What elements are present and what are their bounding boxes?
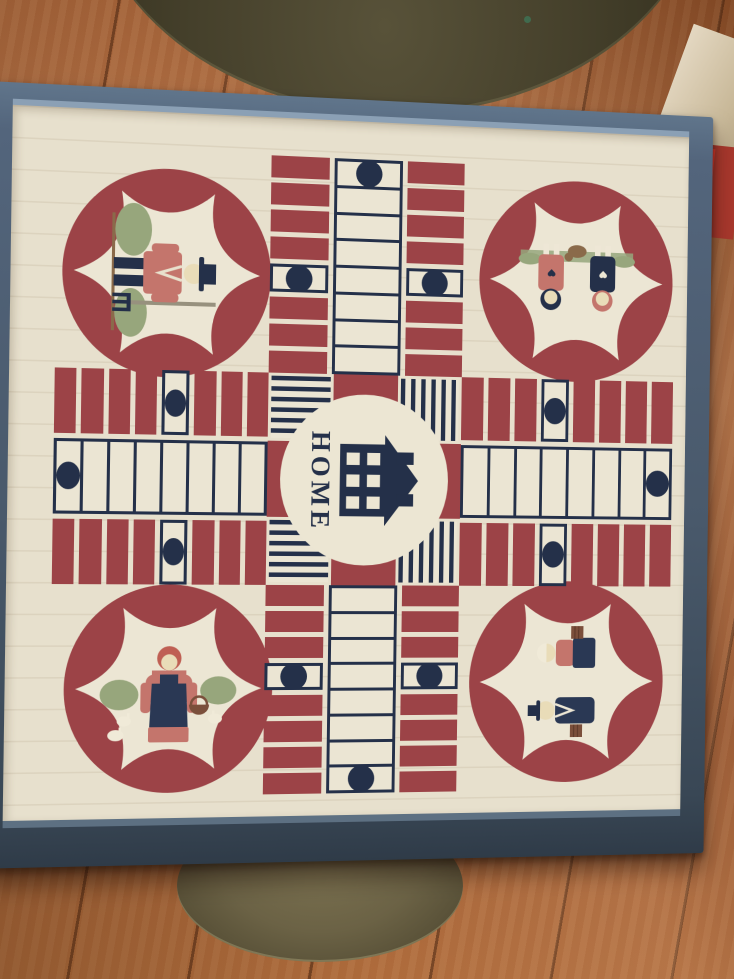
track-cell	[336, 321, 398, 349]
track-cell	[215, 444, 242, 513]
children-figure-graphic	[476, 175, 676, 386]
safe-dot	[347, 765, 374, 792]
track-cell	[597, 524, 619, 586]
track-cell	[571, 524, 593, 586]
track-cell	[337, 188, 399, 217]
corner-medallion-children	[476, 175, 676, 386]
track-lane-side	[405, 161, 465, 377]
game-board: HOME	[0, 81, 713, 868]
safe-cell	[646, 451, 670, 517]
track-cell	[399, 771, 457, 793]
track-cell	[623, 524, 645, 586]
track-cell	[218, 520, 240, 585]
track-cell	[133, 519, 156, 584]
track-lane-side	[52, 519, 267, 585]
corner-medallion-woman	[60, 582, 276, 796]
track-cell	[83, 442, 111, 511]
board-frame: HOME	[0, 81, 713, 868]
track-cell	[79, 519, 102, 584]
track-cell	[512, 523, 535, 586]
track-cell	[625, 381, 647, 443]
photo-scene: HOME	[0, 0, 734, 979]
track-cell	[269, 323, 328, 347]
track-cell	[400, 694, 458, 715]
track-cell	[241, 444, 265, 512]
safe-dot	[544, 397, 566, 424]
track-cell	[109, 442, 137, 511]
safe-cell	[159, 520, 187, 585]
track-cell	[489, 449, 516, 516]
track-cell	[263, 773, 322, 795]
woman-figure-graphic	[60, 582, 276, 796]
track-cell	[401, 585, 459, 606]
track-cell	[336, 294, 398, 322]
safe-cell	[270, 263, 329, 293]
home-label: HOME	[306, 427, 334, 533]
track-cell	[401, 637, 459, 658]
track-lane-side	[54, 367, 269, 436]
corner-medallion-farmer	[59, 162, 275, 381]
track-cell	[407, 188, 465, 212]
safe-dot	[280, 663, 307, 690]
track-cell	[52, 519, 75, 585]
track-cell	[516, 449, 543, 516]
track-cell	[270, 236, 329, 260]
track-lane-mid	[53, 438, 268, 516]
track-cell	[332, 614, 394, 640]
track-cell	[649, 525, 671, 587]
farmer-figure-graphic	[59, 162, 275, 381]
table-speck	[524, 16, 531, 23]
track-cell	[330, 741, 392, 767]
track-cell	[486, 523, 509, 586]
track-cell	[265, 611, 324, 632]
track-cell	[162, 443, 189, 512]
track-cell	[599, 381, 621, 444]
safe-cell	[338, 161, 400, 190]
corner-medallion-couple	[466, 579, 666, 785]
track-cell	[263, 747, 322, 769]
safe-cell	[330, 767, 392, 790]
track-cell	[335, 348, 397, 373]
track-arm-top	[269, 155, 465, 377]
track-cell	[332, 588, 394, 614]
safe-dot	[56, 462, 80, 490]
track-cell	[337, 214, 399, 243]
track-cell	[271, 155, 330, 180]
track-cell	[407, 161, 465, 185]
track-cell	[247, 372, 269, 437]
track-cell	[265, 637, 324, 658]
track-lane-side	[459, 523, 671, 587]
track-cell	[405, 354, 463, 377]
track-cell	[108, 369, 131, 434]
safe-cell	[406, 268, 464, 297]
track-cell	[189, 443, 216, 512]
track-cell	[269, 351, 328, 374]
track-cell	[194, 371, 216, 436]
track-cell	[264, 695, 323, 716]
safe-dot	[421, 269, 447, 296]
track-lane-side	[461, 377, 673, 444]
board-surface: HOME	[3, 105, 690, 821]
track-cell	[542, 449, 569, 516]
track-cell	[271, 182, 330, 206]
track-cell	[488, 378, 511, 441]
track-cell	[331, 665, 393, 691]
safe-dot	[416, 663, 442, 690]
safe-cell	[539, 524, 567, 587]
track-cell	[264, 721, 323, 743]
track-cell	[269, 296, 328, 320]
track-cell	[651, 382, 673, 444]
track-cell	[568, 450, 595, 516]
track-lane-side	[399, 585, 459, 792]
track-cell	[245, 521, 267, 585]
track-cell	[330, 716, 392, 742]
track-cell	[463, 448, 490, 515]
track-cell	[594, 450, 621, 516]
home-rotor: HOME	[306, 427, 423, 533]
track-arm-bottom	[263, 585, 459, 794]
track-cell	[220, 371, 242, 436]
safe-dot	[355, 160, 382, 188]
track-cell	[401, 611, 459, 632]
safe-dot	[646, 471, 669, 497]
track-cell	[400, 720, 458, 741]
track-cell	[620, 451, 647, 517]
safe-dot	[165, 389, 187, 417]
track-lane-mid	[460, 445, 672, 520]
track-lane-side	[263, 585, 325, 794]
safe-cell	[264, 663, 323, 690]
safe-cell	[400, 662, 458, 689]
track-lane-side	[269, 155, 331, 374]
safe-dot	[542, 542, 564, 568]
track-cell	[406, 215, 464, 239]
track-cell	[331, 639, 393, 665]
track-cell	[461, 377, 484, 440]
track-cell	[406, 241, 464, 265]
track-cell	[336, 268, 398, 297]
track-arm-left	[52, 367, 269, 585]
track-lane-mid	[327, 585, 397, 793]
track-cell	[54, 367, 77, 433]
track-lane-mid	[332, 158, 402, 376]
couple-figure-graphic	[466, 579, 666, 785]
track-cell	[459, 523, 482, 586]
track-cell	[136, 442, 163, 511]
track-arm-right	[459, 377, 673, 586]
track-cell	[514, 378, 537, 441]
house-icon	[336, 432, 423, 528]
track-cell	[405, 327, 463, 350]
track-cell	[399, 745, 457, 766]
track-cell	[81, 368, 104, 434]
track-cell	[337, 241, 399, 270]
safe-dot	[163, 538, 185, 565]
track-cell	[331, 690, 393, 716]
track-cell	[265, 585, 324, 606]
safe-dot	[286, 264, 313, 292]
track-cell	[135, 369, 158, 434]
track-cell	[192, 520, 214, 585]
safe-cell	[56, 441, 84, 511]
track-cell	[573, 380, 595, 443]
home-block: HOME	[266, 373, 462, 586]
safe-cell	[541, 379, 569, 442]
track-cell	[271, 209, 330, 233]
safe-cell	[161, 370, 189, 435]
track-cell	[106, 519, 129, 584]
track-cell	[405, 301, 463, 324]
